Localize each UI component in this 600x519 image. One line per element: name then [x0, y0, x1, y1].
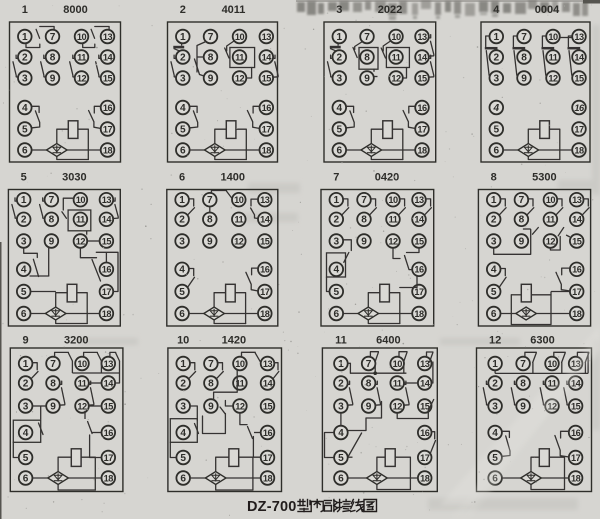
svg-text:11: 11: [335, 335, 347, 347]
svg-text:1: 1: [491, 195, 497, 206]
svg-text:12: 12: [489, 335, 501, 347]
svg-text:14: 14: [572, 215, 583, 225]
svg-text:11: 11: [546, 215, 555, 225]
svg-text:14: 14: [417, 52, 428, 62]
svg-text:6: 6: [22, 145, 28, 156]
svg-text:3: 3: [333, 236, 339, 247]
svg-text:18: 18: [104, 473, 114, 483]
svg-text:6: 6: [179, 172, 185, 184]
svg-text:3: 3: [23, 401, 29, 412]
svg-text:18: 18: [260, 309, 270, 319]
svg-text:2: 2: [180, 52, 186, 63]
svg-text:13: 13: [260, 195, 270, 205]
svg-text:8: 8: [207, 215, 213, 226]
svg-text:5: 5: [22, 124, 28, 135]
svg-text:7: 7: [208, 359, 214, 370]
svg-text:9: 9: [364, 73, 370, 84]
svg-text:18: 18: [572, 309, 582, 319]
svg-text:8: 8: [208, 52, 214, 63]
svg-text:15: 15: [104, 401, 114, 411]
svg-text:12: 12: [391, 73, 401, 83]
svg-text:9: 9: [521, 73, 527, 84]
svg-text:9: 9: [208, 73, 214, 84]
svg-text:7: 7: [50, 32, 56, 43]
svg-text:4: 4: [491, 265, 497, 276]
svg-text:12: 12: [235, 401, 245, 411]
svg-text:16: 16: [571, 428, 581, 438]
svg-text:7: 7: [207, 195, 213, 206]
svg-text:4: 4: [21, 265, 27, 276]
svg-text:2: 2: [22, 52, 28, 63]
svg-text:12: 12: [393, 401, 403, 411]
svg-text:2: 2: [21, 215, 27, 226]
svg-text:11: 11: [77, 52, 86, 62]
svg-text:16: 16: [102, 265, 112, 275]
svg-text:1: 1: [338, 359, 344, 370]
svg-text:11: 11: [78, 378, 87, 388]
svg-text:10: 10: [547, 359, 557, 369]
svg-text:1: 1: [180, 32, 186, 43]
svg-text:13: 13: [574, 32, 584, 42]
svg-text:16: 16: [103, 103, 113, 113]
svg-text:4: 4: [336, 103, 342, 114]
svg-text:9: 9: [207, 236, 213, 247]
svg-text:7: 7: [520, 359, 526, 370]
svg-text:12: 12: [388, 236, 398, 246]
svg-text:2: 2: [336, 52, 342, 63]
svg-text:2022: 2022: [378, 4, 402, 16]
svg-text:10: 10: [234, 195, 244, 205]
svg-text:16: 16: [104, 428, 114, 438]
svg-text:14: 14: [420, 378, 431, 388]
svg-text:1: 1: [21, 195, 27, 206]
svg-text:10: 10: [393, 359, 403, 369]
svg-text:6: 6: [180, 145, 186, 156]
svg-text:5: 5: [336, 124, 342, 135]
svg-text:15: 15: [572, 236, 582, 246]
svg-text:11: 11: [235, 52, 244, 62]
svg-text:18: 18: [262, 145, 272, 155]
svg-text:3: 3: [180, 401, 186, 412]
svg-text:14: 14: [263, 378, 274, 388]
svg-text:13: 13: [102, 195, 112, 205]
svg-text:14: 14: [262, 52, 273, 62]
svg-text:7: 7: [50, 359, 56, 370]
svg-text:1420: 1420: [222, 335, 246, 347]
svg-text:4: 4: [22, 103, 28, 114]
svg-text:15: 15: [102, 236, 112, 246]
svg-text:8: 8: [520, 378, 526, 389]
svg-text:18: 18: [571, 473, 581, 483]
svg-text:3: 3: [336, 4, 342, 16]
svg-text:8: 8: [366, 378, 372, 389]
svg-text:5: 5: [180, 453, 186, 464]
svg-text:11: 11: [389, 215, 398, 225]
svg-text:3200: 3200: [64, 335, 88, 347]
svg-text:1: 1: [179, 195, 185, 206]
svg-text:17: 17: [571, 453, 581, 463]
svg-text:10: 10: [388, 195, 398, 205]
svg-text:1: 1: [333, 195, 339, 206]
svg-text:8: 8: [208, 378, 214, 389]
svg-text:2: 2: [180, 378, 186, 389]
svg-text:4: 4: [180, 103, 186, 114]
svg-text:17: 17: [260, 287, 270, 297]
svg-text:6300: 6300: [530, 335, 554, 347]
svg-text:6: 6: [336, 145, 342, 156]
svg-text:6: 6: [491, 309, 497, 320]
svg-text:17: 17: [420, 453, 430, 463]
svg-text:1: 1: [180, 359, 186, 370]
svg-text:9: 9: [23, 335, 29, 347]
svg-text:10: 10: [77, 359, 87, 369]
svg-text:17: 17: [102, 287, 112, 297]
svg-text:7: 7: [366, 359, 372, 370]
svg-text:4: 4: [23, 428, 29, 439]
svg-text:15: 15: [262, 73, 272, 83]
svg-text:5: 5: [23, 453, 29, 464]
svg-text:10: 10: [546, 195, 556, 205]
svg-text:1: 1: [492, 359, 498, 370]
svg-text:17: 17: [104, 453, 114, 463]
svg-text:14: 14: [103, 52, 114, 62]
svg-text:16: 16: [420, 428, 430, 438]
svg-text:13: 13: [572, 195, 582, 205]
svg-text:16: 16: [260, 265, 270, 275]
svg-text:3: 3: [493, 73, 499, 84]
svg-text:1: 1: [22, 32, 28, 43]
svg-text:17: 17: [572, 287, 582, 297]
svg-text:2: 2: [491, 215, 497, 226]
svg-text:15: 15: [574, 73, 584, 83]
svg-text:7: 7: [521, 32, 527, 43]
svg-text:16: 16: [572, 265, 582, 275]
svg-text:5: 5: [21, 172, 27, 184]
svg-text:17: 17: [262, 124, 272, 134]
svg-text:3: 3: [180, 73, 186, 84]
svg-text:8000: 8000: [63, 4, 87, 16]
svg-text:11: 11: [234, 215, 243, 225]
svg-text:6400: 6400: [376, 335, 400, 347]
svg-text:8: 8: [50, 52, 56, 63]
svg-text:18: 18: [414, 309, 424, 319]
svg-text:4: 4: [492, 103, 499, 114]
svg-text:4: 4: [338, 428, 344, 439]
svg-text:8: 8: [521, 52, 527, 63]
svg-text:6: 6: [21, 309, 27, 320]
svg-text:4: 4: [493, 4, 500, 16]
svg-text:7: 7: [364, 32, 370, 43]
svg-text:6: 6: [23, 473, 29, 484]
svg-text:5: 5: [338, 453, 344, 464]
svg-text:DZ-700: DZ-700: [247, 499, 297, 515]
svg-text:17: 17: [103, 124, 113, 134]
svg-text:16: 16: [263, 428, 273, 438]
svg-text:10: 10: [235, 359, 245, 369]
svg-text:13: 13: [414, 195, 424, 205]
svg-text:7: 7: [519, 195, 525, 206]
svg-text:1: 1: [22, 4, 28, 16]
svg-text:4011: 4011: [222, 4, 246, 16]
svg-text:1: 1: [23, 359, 29, 370]
svg-text:16: 16: [414, 265, 424, 275]
svg-text:4: 4: [333, 265, 339, 276]
svg-text:12: 12: [77, 401, 87, 411]
svg-text:0004: 0004: [535, 4, 560, 16]
svg-text:4: 4: [180, 428, 186, 439]
svg-text:15: 15: [260, 236, 270, 246]
svg-text:8: 8: [50, 378, 56, 389]
svg-text:18: 18: [102, 309, 112, 319]
svg-text:4: 4: [492, 428, 498, 439]
svg-text:12: 12: [546, 236, 556, 246]
svg-text:5: 5: [179, 287, 185, 298]
svg-text:10: 10: [391, 32, 401, 42]
svg-text:9: 9: [208, 401, 214, 412]
svg-text:12: 12: [235, 73, 245, 83]
svg-text:17: 17: [417, 124, 427, 134]
svg-text:13: 13: [262, 32, 272, 42]
svg-text:16: 16: [417, 103, 427, 113]
svg-text:10: 10: [177, 335, 189, 347]
svg-text:15: 15: [571, 401, 581, 411]
svg-text:0420: 0420: [375, 172, 399, 184]
svg-text:1: 1: [336, 32, 342, 43]
svg-text:18: 18: [417, 145, 427, 155]
svg-text:9: 9: [49, 236, 55, 247]
svg-text:3: 3: [336, 73, 342, 84]
svg-text:4: 4: [179, 265, 185, 276]
svg-text:2: 2: [493, 52, 499, 63]
svg-text:10: 10: [77, 32, 87, 42]
svg-text:14: 14: [104, 378, 115, 388]
svg-text:10: 10: [548, 32, 558, 42]
svg-text:5: 5: [180, 124, 186, 135]
svg-text:11: 11: [392, 52, 401, 62]
svg-text:1400: 1400: [221, 172, 245, 184]
svg-text:3: 3: [179, 236, 185, 247]
svg-text:2: 2: [338, 378, 344, 389]
svg-text:3: 3: [492, 401, 498, 412]
svg-text:9: 9: [50, 73, 56, 84]
svg-text:9: 9: [361, 236, 367, 247]
svg-text:7: 7: [49, 195, 55, 206]
svg-text:14: 14: [574, 52, 585, 62]
svg-text:8: 8: [491, 172, 497, 184]
svg-text:8: 8: [361, 215, 367, 226]
svg-text:17: 17: [414, 287, 424, 297]
svg-text:8: 8: [519, 215, 525, 226]
svg-text:9: 9: [519, 236, 525, 247]
svg-text:7: 7: [208, 32, 214, 43]
svg-text:3: 3: [22, 73, 28, 84]
svg-text:16: 16: [262, 103, 272, 113]
svg-text:17: 17: [263, 453, 273, 463]
svg-text:18: 18: [420, 473, 430, 483]
svg-text:13: 13: [103, 32, 113, 42]
svg-text:3: 3: [338, 401, 344, 412]
svg-text:6: 6: [179, 309, 185, 320]
svg-text:5: 5: [21, 287, 27, 298]
svg-text:6: 6: [333, 309, 339, 320]
svg-text:2: 2: [23, 378, 29, 389]
svg-text:6: 6: [180, 473, 186, 484]
svg-text:10: 10: [235, 32, 245, 42]
svg-text:5: 5: [333, 287, 339, 298]
svg-text:18: 18: [574, 145, 584, 155]
svg-text:3030: 3030: [62, 172, 86, 184]
svg-text:17: 17: [574, 124, 584, 134]
svg-text:2: 2: [179, 215, 185, 226]
svg-text:13: 13: [420, 359, 430, 369]
svg-text:7: 7: [361, 195, 367, 206]
svg-text:11: 11: [393, 378, 402, 388]
svg-text:11: 11: [549, 52, 558, 62]
svg-text:2: 2: [333, 215, 339, 226]
svg-text:9: 9: [50, 401, 56, 412]
svg-text:2: 2: [180, 4, 186, 16]
svg-text:12: 12: [76, 236, 86, 246]
svg-text:6: 6: [338, 473, 344, 484]
svg-text:2: 2: [492, 378, 498, 389]
svg-text:9: 9: [520, 401, 526, 412]
svg-text:3: 3: [491, 236, 497, 247]
svg-text:12: 12: [548, 73, 558, 83]
svg-text:15: 15: [263, 401, 273, 411]
svg-text:1: 1: [493, 32, 499, 43]
svg-text:15: 15: [103, 73, 113, 83]
svg-text:8: 8: [49, 215, 55, 226]
svg-text:8: 8: [364, 52, 370, 63]
svg-text:14: 14: [260, 215, 271, 225]
svg-text:5300: 5300: [532, 172, 556, 184]
svg-text:11: 11: [76, 215, 85, 225]
svg-text:15: 15: [417, 73, 427, 83]
svg-text:7: 7: [333, 172, 339, 184]
svg-text:16: 16: [574, 103, 585, 113]
svg-text:13: 13: [417, 32, 427, 42]
svg-text:5: 5: [491, 287, 497, 298]
svg-text:15: 15: [414, 236, 424, 246]
svg-text:12: 12: [77, 73, 87, 83]
svg-text:13: 13: [104, 359, 114, 369]
svg-text:14: 14: [102, 215, 113, 225]
svg-text:9: 9: [366, 401, 372, 412]
svg-text:10: 10: [76, 195, 86, 205]
svg-text:11: 11: [548, 378, 557, 388]
svg-text:14: 14: [414, 215, 425, 225]
svg-text:18: 18: [103, 145, 113, 155]
svg-text:5: 5: [493, 124, 499, 135]
svg-text:13: 13: [263, 359, 273, 369]
svg-text:3: 3: [21, 236, 27, 247]
svg-text:6: 6: [493, 145, 499, 156]
svg-text:18: 18: [263, 473, 273, 483]
